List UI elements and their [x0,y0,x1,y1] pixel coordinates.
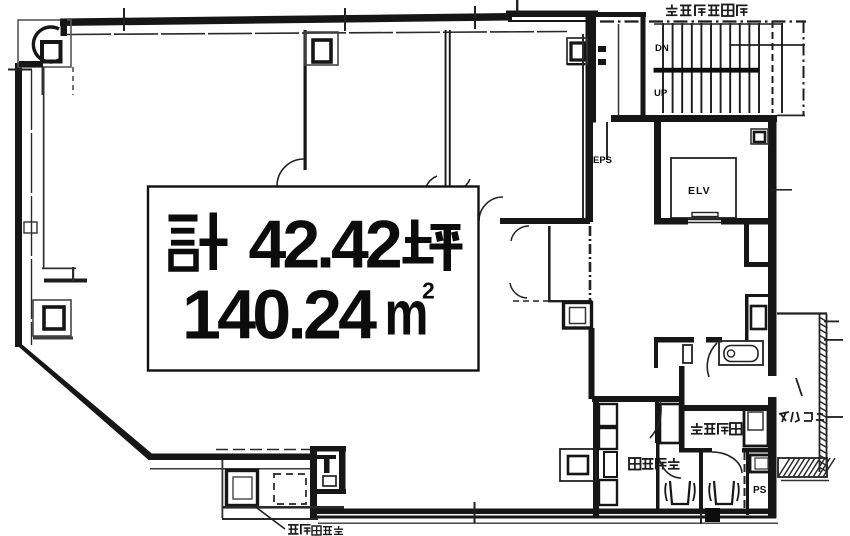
svg-text:42.42: 42.42 [249,207,401,283]
svg-text:140.24: 140.24 [182,276,377,354]
svg-text:PS: PS [753,485,767,496]
svg-text:EPS: EPS [593,155,612,166]
svg-text:ELV: ELV [688,185,711,197]
svg-text:2: 2 [422,278,435,304]
svg-text:UP: UP [654,88,668,99]
svg-text:DN: DN [655,43,669,54]
